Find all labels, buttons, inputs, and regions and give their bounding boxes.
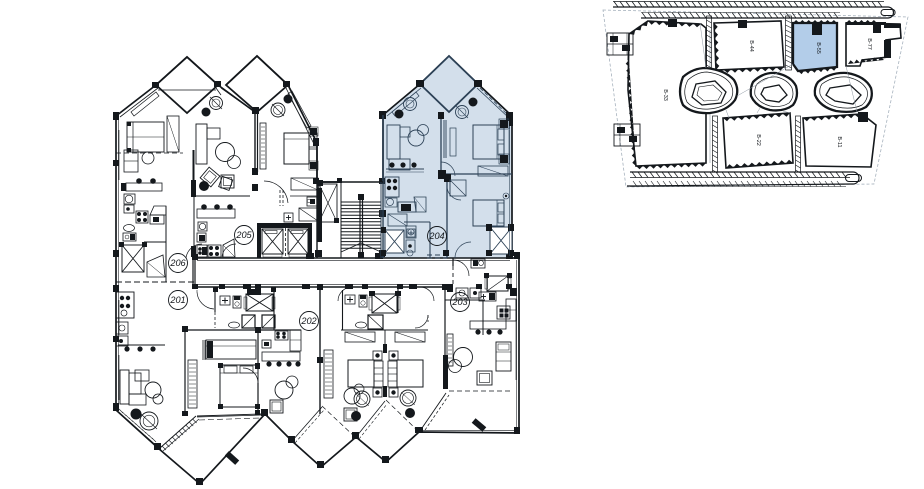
svg-text:B-55: B-55	[815, 42, 821, 54]
svg-text:203: 203	[451, 297, 468, 307]
svg-text:202: 202	[300, 316, 316, 326]
svg-text:206: 206	[169, 258, 186, 268]
svg-text:B-22: B-22	[755, 134, 761, 146]
svg-text:205: 205	[235, 230, 252, 240]
svg-text:B-33: B-33	[662, 89, 668, 101]
svg-text:201: 201	[169, 295, 185, 305]
svg-text:204: 204	[428, 231, 444, 241]
svg-text:B-44: B-44	[748, 40, 754, 52]
svg-text:B-77: B-77	[866, 38, 872, 50]
svg-text:B-11: B-11	[836, 136, 842, 147]
